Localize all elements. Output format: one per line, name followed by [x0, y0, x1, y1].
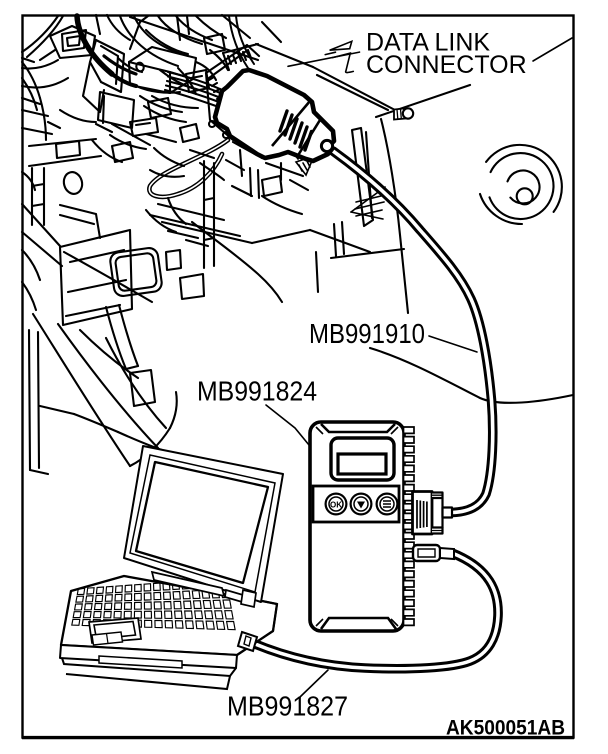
svg-text:OK: OK	[330, 501, 342, 510]
svg-text:CONNECTOR: CONNECTOR	[366, 51, 527, 79]
svg-text:MB991827: MB991827	[227, 691, 348, 722]
svg-text:MB991824: MB991824	[197, 376, 317, 407]
svg-text:AK500051AB: AK500051AB	[446, 716, 565, 740]
svg-text:MB991910: MB991910	[309, 318, 425, 349]
